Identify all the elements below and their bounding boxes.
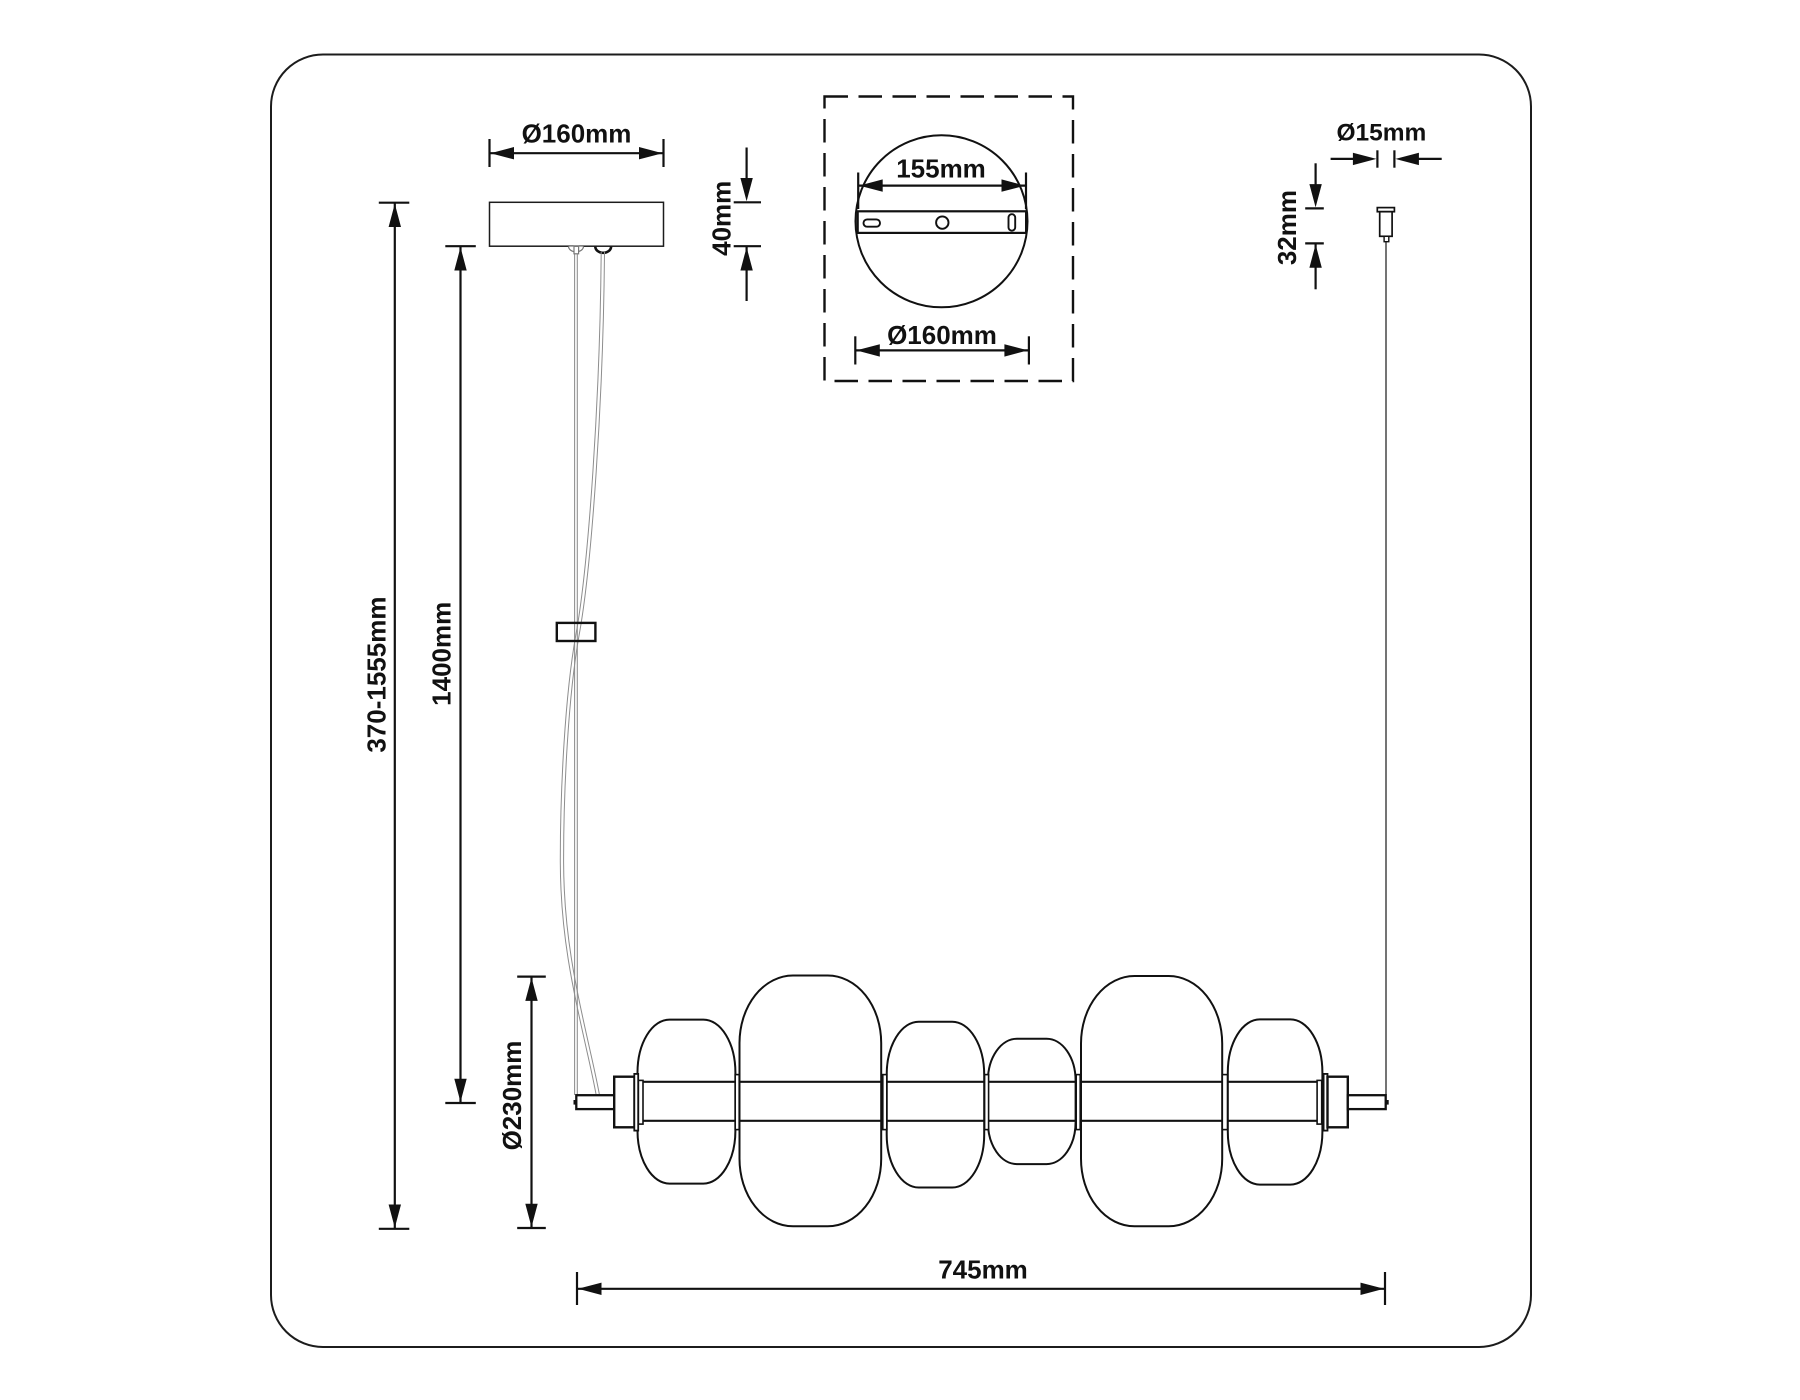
svg-text:Ø160mm: Ø160mm (522, 119, 632, 149)
svg-text:1400mm: 1400mm (427, 602, 457, 706)
svg-text:40mm: 40mm (707, 181, 737, 256)
svg-text:32mm: 32mm (1272, 190, 1302, 265)
svg-text:155mm: 155mm (896, 154, 986, 184)
svg-text:370-1555mm: 370-1555mm (362, 597, 392, 753)
svg-text:Ø160mm: Ø160mm (887, 320, 997, 350)
svg-text:Ø230mm: Ø230mm (497, 1041, 527, 1151)
svg-text:745mm: 745mm (938, 1254, 1028, 1284)
svg-text:Ø15mm: Ø15mm (1336, 120, 1426, 147)
